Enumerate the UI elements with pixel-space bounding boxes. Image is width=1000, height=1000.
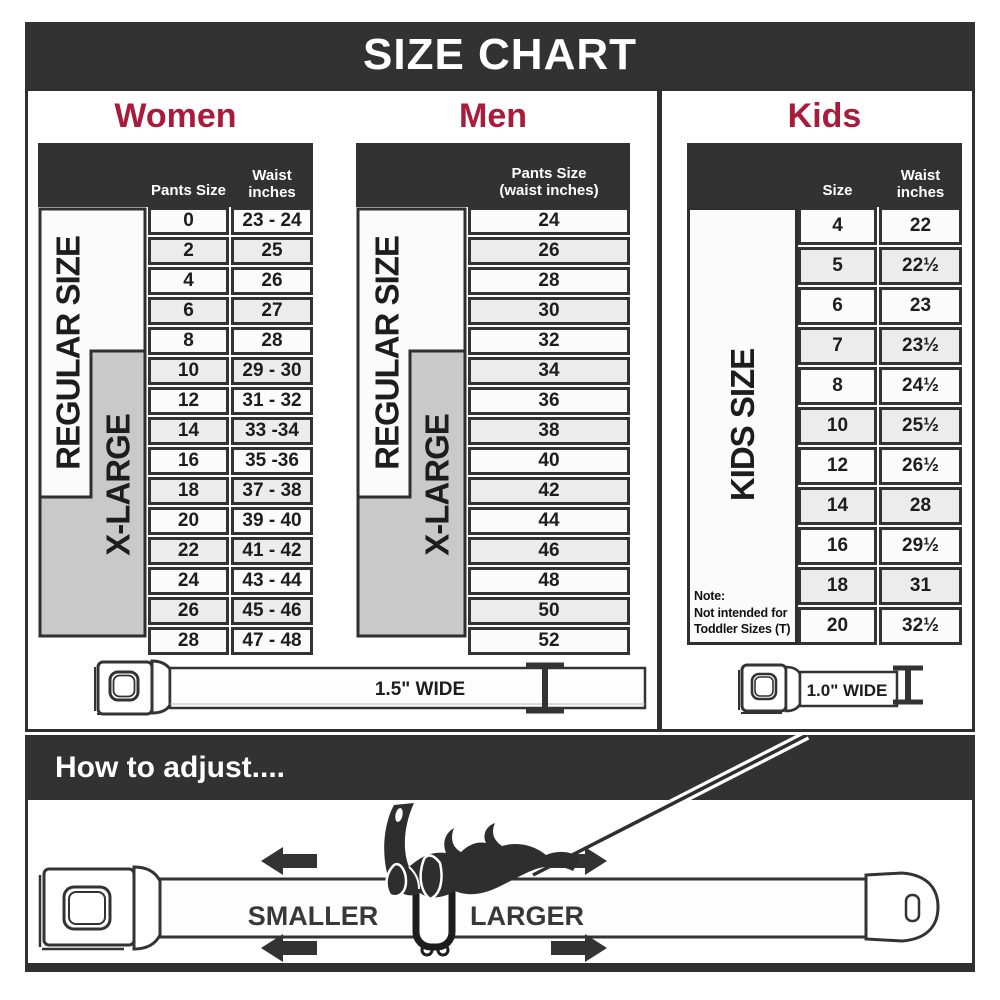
women-rows: 023 - 242254266278281029 - 301231 - 3214… [148, 207, 313, 644]
table-cell: 18 [798, 567, 877, 605]
adjust-heading: How to adjust.... [25, 751, 285, 785]
table-cell: 31 [879, 567, 962, 605]
table-cell: 34 [468, 357, 630, 385]
table-cell: 48 [468, 567, 630, 595]
table-cell: 4 [798, 207, 877, 245]
buckle-latch [786, 667, 800, 711]
men-col-pants-size: Pants Size (waist inches) [468, 165, 630, 199]
adult-width-label: 1.5" WIDE [375, 679, 465, 700]
table-cell: 39 - 40 [231, 507, 313, 535]
table-cell: 4 [148, 267, 229, 295]
women-col-waist-line2: inches [231, 184, 313, 201]
kids-table-header: Size Waist inches [687, 143, 962, 207]
kids-note: Note: Not intended for Toddler Sizes (T) [694, 588, 790, 637]
men-col-line1: Pants Size [468, 165, 630, 182]
kids-col-waist-line2: inches [879, 184, 962, 201]
table-cell: 10 [148, 357, 229, 385]
table-cell: 32 [468, 327, 630, 355]
kids-heading: Kids [687, 97, 962, 136]
table-cell: 24½ [879, 367, 962, 405]
buckle-inner-ring2 [755, 677, 773, 696]
kids-size-label: KIDS SIZE [724, 349, 762, 501]
table-cell: 26 [231, 267, 313, 295]
table-cell: 20 [798, 607, 877, 645]
table-cell: 41 - 42 [231, 537, 313, 565]
kids-col-waist: Waist inches [879, 167, 962, 201]
buckle-inner-ring2 [69, 892, 105, 924]
table-cell: 28 [231, 327, 313, 355]
table-cell: 8 [148, 327, 229, 355]
table-cell: 32½ [879, 607, 962, 645]
table-cell: 43 - 44 [231, 567, 313, 595]
table-cell: 24 [148, 567, 229, 595]
table-cell: 22 [879, 207, 962, 245]
table-cell: 26 [468, 237, 630, 265]
men-table-header: Pants Size (waist inches) [356, 143, 630, 207]
kids-note-line3: Toddler Sizes (T) [694, 621, 790, 637]
women-col-waist: Waist inches [231, 167, 313, 201]
table-cell: 8 [798, 367, 877, 405]
table-cell: 0 [148, 207, 229, 235]
buckle-inner-ring2 [114, 676, 135, 697]
kids-note-line1: Note: [694, 588, 790, 604]
table-cell: 10 [798, 407, 877, 445]
table-cell: 18 [148, 477, 229, 505]
arrow-left-top-icon [261, 847, 317, 875]
table-cell: 36 [468, 387, 630, 415]
buckle-latch [152, 661, 170, 713]
table-cell: 30 [468, 297, 630, 325]
table-cell: 23½ [879, 327, 962, 365]
kids-note-line2: Not intended for [694, 605, 790, 621]
table-cell: 25 [231, 237, 313, 265]
adjust-heading-bar: How to adjust.... [25, 735, 975, 800]
kids-width-label: 1.0" WIDE [807, 681, 888, 700]
table-cell: 45 - 46 [231, 597, 313, 625]
table-cell: 28 [468, 267, 630, 295]
title-banner: SIZE CHART [25, 22, 975, 88]
table-cell: 50 [468, 597, 630, 625]
women-col-pants-size: Pants Size [148, 182, 229, 199]
table-cell: 6 [148, 297, 229, 325]
women-xlarge-label: X-LARGE [100, 414, 137, 556]
men-regular-size-label: REGULAR SIZE [369, 236, 406, 470]
page-title: SIZE CHART [363, 30, 637, 80]
table-cell: 16 [148, 447, 229, 475]
men-xlarge-label: X-LARGE [419, 414, 456, 556]
adjust-belt-illustration: SMALLER LARGER [28, 803, 972, 963]
table-cell: 31 - 32 [231, 387, 313, 415]
table-cell: 12 [148, 387, 229, 415]
women-regular-size-label: REGULAR SIZE [50, 236, 87, 470]
kids-col-waist-line1: Waist [879, 167, 962, 184]
table-cell: 40 [468, 447, 630, 475]
table-cell: 44 [468, 507, 630, 535]
women-col-waist-line1: Waist [231, 167, 313, 184]
gripping-finger-icon [421, 856, 442, 899]
belt-tip [866, 873, 938, 941]
table-cell: 35 -36 [231, 447, 313, 475]
kids-col-size: Size [798, 182, 877, 199]
men-size-range-graphic: REGULAR SIZE X-LARGE [356, 207, 468, 644]
table-cell: 46 [468, 537, 630, 565]
women-table-header: Pants Size Waist inches [38, 143, 313, 207]
men-heading: Men [356, 97, 630, 136]
table-cell: 37 - 38 [231, 477, 313, 505]
larger-label: LARGER [470, 901, 584, 931]
table-cell: 28 [148, 627, 229, 655]
table-cell: 2 [148, 237, 229, 265]
table-cell: 6 [798, 287, 877, 325]
table-cell: 22 [148, 537, 229, 565]
table-cell: 33 -34 [231, 417, 313, 445]
table-cell: 42 [468, 477, 630, 505]
kids-rows: 422522½623723½824½1025½1226½14281629½183… [798, 207, 962, 645]
table-cell: 27 [231, 297, 313, 325]
women-heading: Women [38, 97, 313, 136]
men-col-line2: (waist inches) [468, 182, 630, 199]
smaller-label: SMALLER [248, 901, 379, 931]
table-cell: 23 [879, 287, 962, 325]
table-cell: 14 [798, 487, 877, 525]
belt-tip-slot [906, 895, 919, 921]
men-rows: 242628303234363840424446485052 [468, 207, 630, 644]
table-cell: 12 [798, 447, 877, 485]
table-cell: 26½ [879, 447, 962, 485]
table-cell: 14 [148, 417, 229, 445]
women-size-range-graphic: REGULAR SIZE X-LARGE [38, 207, 148, 644]
table-cell: 29½ [879, 527, 962, 565]
table-cell: 47 - 48 [231, 627, 313, 655]
table-cell: 24 [468, 207, 630, 235]
table-cell: 20 [148, 507, 229, 535]
table-cell: 38 [468, 417, 630, 445]
kids-size-range-graphic: KIDS SIZE Note: Not intended for Toddler… [687, 207, 798, 645]
table-cell: 29 - 30 [231, 357, 313, 385]
table-cell: 26 [148, 597, 229, 625]
table-cell: 5 [798, 247, 877, 285]
table-cell: 23 - 24 [231, 207, 313, 235]
table-cell: 52 [468, 627, 630, 655]
table-cell: 22½ [879, 247, 962, 285]
table-cell: 28 [879, 487, 962, 525]
belt-illustration-adult: 1.5" WIDE [90, 655, 650, 721]
table-cell: 25½ [879, 407, 962, 445]
panel-divider [657, 88, 662, 732]
thumb-icon [387, 864, 406, 896]
size-chart-page: SIZE CHART Women Men Kids Pants Size Wai… [0, 0, 1000, 1000]
belt-illustration-kids: 1.0" WIDE [730, 655, 935, 721]
buckle-latch [134, 867, 160, 949]
table-cell: 7 [798, 327, 877, 365]
table-cell: 16 [798, 527, 877, 565]
